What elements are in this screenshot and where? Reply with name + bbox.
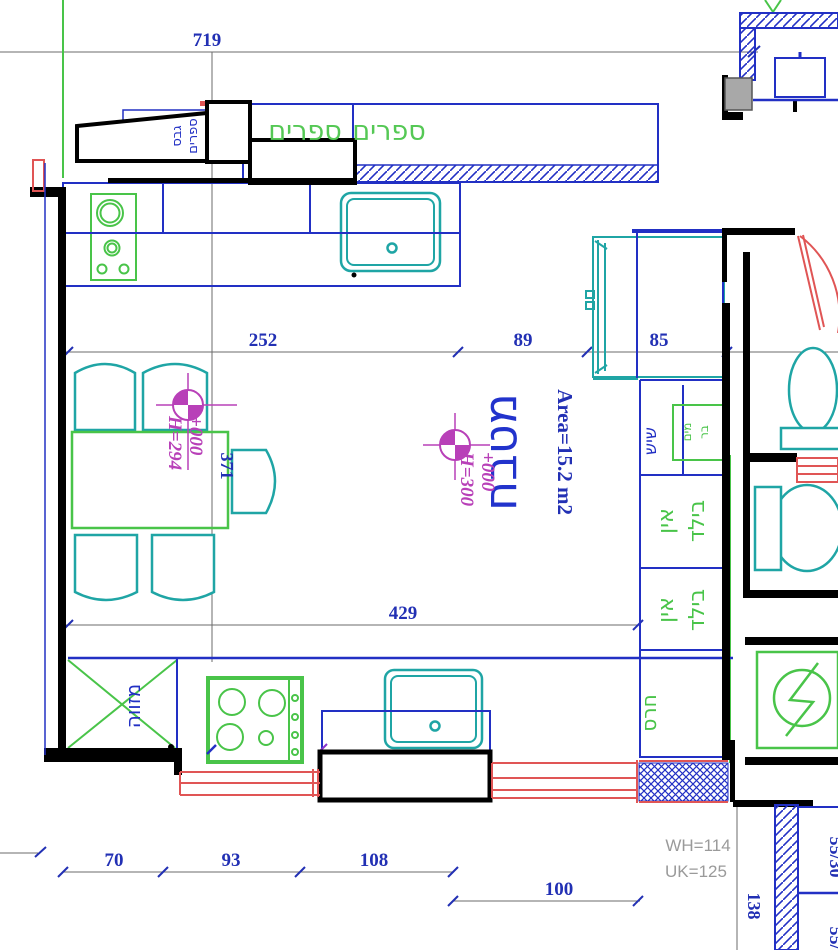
window-sill-note: UK=125 — [665, 862, 727, 881]
tap-dot — [352, 273, 357, 278]
chair — [152, 535, 214, 600]
column — [725, 78, 752, 110]
shelf-hatch — [355, 165, 658, 182]
tall-unit-blue-frame — [632, 231, 724, 378]
soffit-label-1: ספרים — [186, 118, 201, 153]
tall-unit — [586, 237, 724, 379]
left-window — [180, 769, 320, 797]
area-label: Area=15.2 m2 — [553, 389, 577, 515]
dining-height: H=294 — [164, 415, 185, 470]
window-head-note: WH=114 — [665, 836, 730, 855]
bookshelf-label-2: ספרים — [352, 116, 426, 147]
dim-passage: 89 — [514, 330, 533, 351]
dim-win3: 108 — [360, 850, 389, 871]
dim-right-wall: 138 — [744, 893, 764, 920]
countertop-label: שיש — [641, 427, 661, 455]
lower-run — [68, 658, 733, 762]
construction-lines — [0, 52, 838, 950]
kitchen-level: +000 — [477, 452, 498, 492]
upper-cooktop — [91, 194, 136, 280]
lower-cooktop — [208, 678, 302, 762]
builtin-top-label-1: בילד — [685, 500, 710, 542]
bookshelf-label-1: ספרים — [268, 116, 342, 147]
toilet-tank — [755, 487, 781, 570]
pantry-label: מזווה — [121, 684, 145, 728]
appliance — [775, 58, 825, 97]
small-window — [797, 458, 838, 482]
dim-cabinet: 85 — [650, 330, 669, 351]
dim-counter-run: 252 — [249, 330, 278, 351]
builtin-bottom-label-1: בילד — [685, 589, 710, 631]
tile-spec-1: 55/30 — [826, 836, 838, 877]
soffit-label-2: גבס — [170, 125, 185, 146]
tile-spec-2: 55/30 — [826, 926, 838, 950]
dim-lower-run: 429 — [389, 603, 418, 624]
floor-plan-stage: 719 252 89 85 429 70 93 108 100 371 138 … — [0, 0, 838, 950]
builtin-top-label-2: אין — [654, 508, 679, 534]
floor-plan-canvas: 719 252 89 85 429 70 93 108 100 371 138 … — [0, 0, 838, 950]
toilet-tank — [781, 428, 838, 449]
dim-win1: 70 — [105, 850, 124, 871]
kitchen-height: H=300 — [456, 451, 477, 507]
dim-top: 719 — [193, 30, 222, 51]
chair — [75, 535, 137, 600]
chair — [232, 450, 275, 513]
electrical-panel — [757, 652, 838, 748]
dim-win4: 100 — [545, 879, 574, 900]
dim-win2: 93 — [222, 850, 241, 871]
dim-table-depth: 371 — [217, 453, 237, 480]
bar-label-1: בר — [697, 425, 711, 439]
toilet-bowl — [789, 348, 837, 432]
ceramic-label: חרס — [637, 694, 661, 731]
lower-sink — [385, 670, 482, 748]
bar-label-2: מים — [680, 423, 694, 442]
right-window — [492, 763, 637, 798]
builtin-bottom-label-2: אין — [654, 597, 679, 623]
dining-level: +000 — [185, 416, 206, 456]
cabinet-front-wall — [108, 178, 356, 183]
hatched-window — [637, 760, 728, 803]
dining-level-marker-text: +000H=294 — [164, 415, 206, 470]
top-right-room — [725, 13, 838, 110]
chair — [75, 364, 135, 430]
bathroom-fixtures — [755, 235, 838, 748]
window-sill-box — [320, 752, 490, 800]
